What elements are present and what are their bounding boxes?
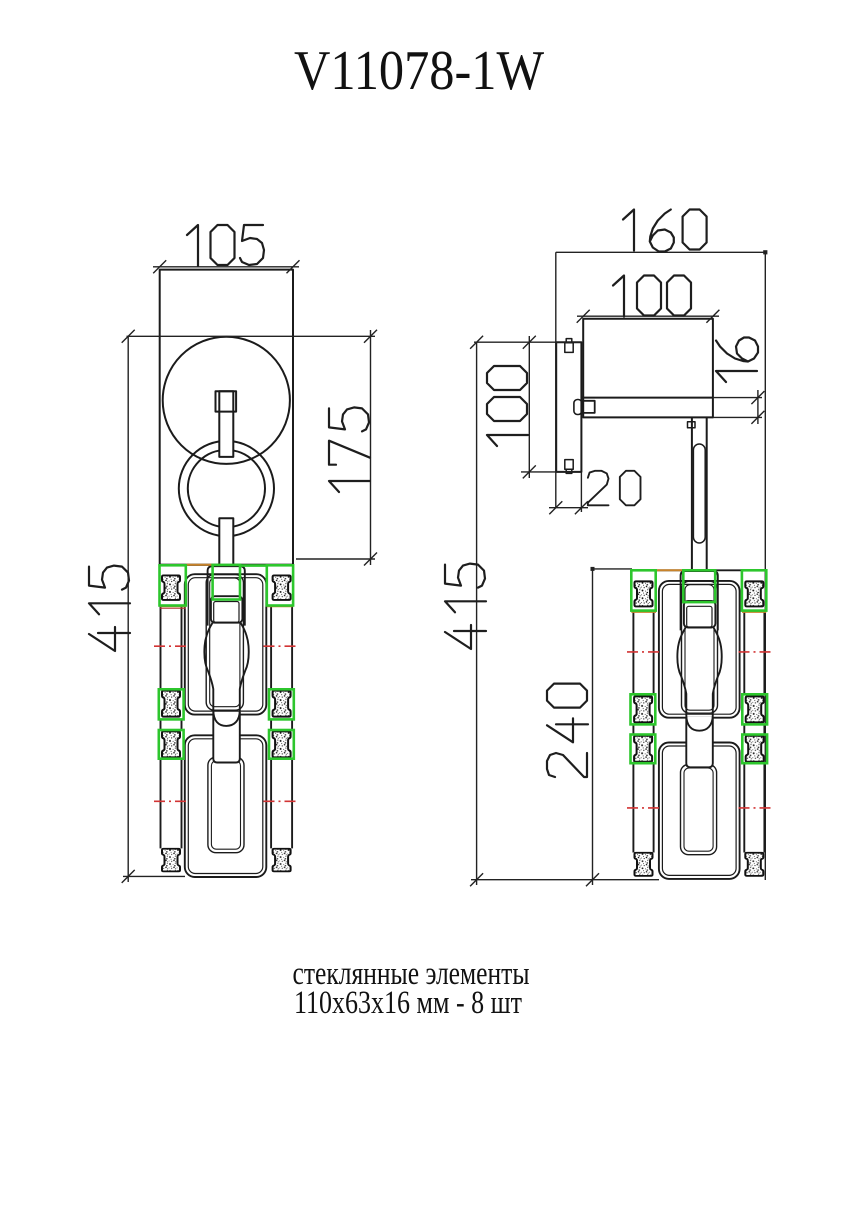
- svg-text:V11078-1W: V11078-1W: [294, 40, 544, 102]
- svg-text:110х63х16 мм - 8 шт: 110х63х16 мм - 8 шт: [294, 985, 522, 1021]
